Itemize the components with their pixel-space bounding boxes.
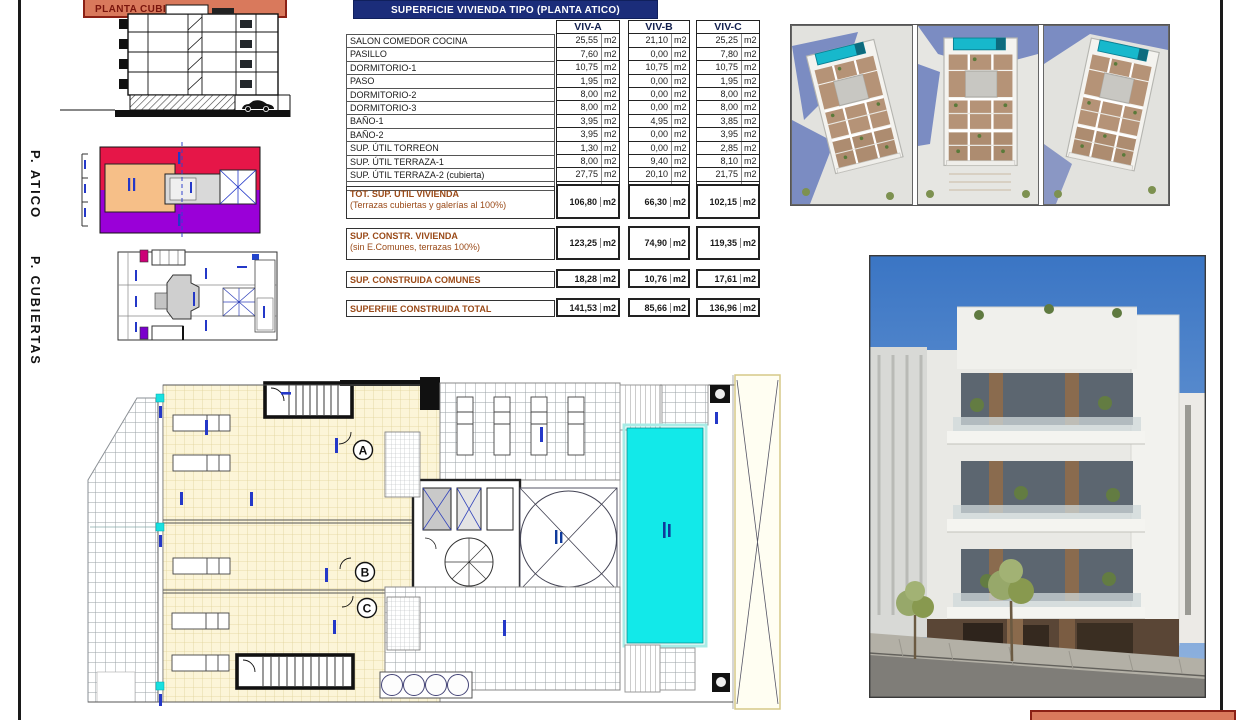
value-unit: m2 [742, 48, 759, 61]
value-unit: m2 [602, 155, 619, 168]
row-label: BAÑO-2 [346, 128, 555, 142]
value-number: 0,00 [629, 75, 672, 88]
value-unit: m2 [742, 168, 759, 181]
skylight-circle [520, 488, 617, 590]
value-number: 25,55 [557, 34, 602, 47]
value-unit: m2 [672, 115, 689, 128]
setback-strip [733, 375, 780, 709]
value-unit: m2 [742, 61, 759, 74]
planter-circles [380, 672, 472, 698]
summary-label: SUP. CONSTRUIDA COMUNES [346, 271, 555, 288]
value-unit: m2 [601, 238, 618, 248]
value-unit: m2 [602, 88, 619, 101]
value-unit: m2 [672, 101, 689, 114]
row-label: SUP. ÚTIL TERRAZA-2 (cubierta) [346, 168, 555, 182]
table-column-header-row: VIV-A VIV-B VIV-C [346, 20, 760, 33]
summary-row: SUPERFIIE CONSTRUIDA TOTAL141,53m285,66m… [346, 300, 760, 317]
value-unit: m2 [741, 274, 758, 284]
value-number: 119,35 [698, 238, 741, 248]
value-unit: m2 [742, 75, 759, 88]
value-cell: 119,35m2 [696, 226, 760, 260]
value-number: 8,10 [697, 155, 742, 168]
letter-b: B [361, 565, 370, 579]
floor-band-2 [947, 461, 1145, 532]
value-number: 7,80 [697, 48, 742, 61]
p-cubiertas-key-plan [95, 248, 285, 352]
value-unit: m2 [602, 48, 619, 61]
value-number: 3,95 [697, 128, 742, 141]
value-unit: m2 [741, 238, 758, 248]
value-cell: 141,53m2 [556, 298, 620, 317]
value-unit: m2 [742, 34, 759, 47]
value-unit: m2 [602, 61, 619, 74]
summary-row: TOT. SUP. UTIL VIVIENDA(Terrazas cubiert… [346, 186, 760, 219]
roof-floor-plan: A B C [85, 372, 785, 712]
value-number: 1,95 [697, 75, 742, 88]
value-unit: m2 [602, 142, 619, 155]
p-atico-label: P. ATICO [28, 150, 43, 219]
value-number: 8,00 [697, 101, 742, 114]
value-number: 20,10 [629, 168, 672, 181]
value-unit: m2 [602, 115, 619, 128]
aerial-render-strip [790, 24, 1170, 206]
value-number: 21,10 [629, 34, 672, 47]
value-number: 141,53 [558, 303, 601, 313]
summary-row: SUP. CONSTR. VIVIENDA(sin E.Comunes, ter… [346, 228, 760, 260]
value-number: 3,95 [557, 115, 602, 128]
value-unit: m2 [602, 101, 619, 114]
row-label: BAÑO-1 [346, 114, 555, 128]
value-number: 8,00 [697, 88, 742, 101]
atico-core-xbox [220, 170, 256, 204]
table-title: SUPERFICIE VIVIENDA TIPO (PLANTA ATICO) [353, 0, 658, 19]
floor-band-3 [947, 549, 1145, 619]
value-unit: m2 [742, 155, 759, 168]
value-number: 0,00 [629, 48, 672, 61]
value-number: 25,25 [697, 34, 742, 47]
value-unit: m2 [672, 75, 689, 88]
value-number: 10,75 [697, 61, 742, 74]
value-number: 18,28 [558, 274, 601, 284]
car-silhouette [242, 100, 274, 111]
value-number: 3,95 [557, 128, 602, 141]
letter-c: C [363, 601, 372, 615]
value-number: 21,75 [697, 168, 742, 181]
value-number: 8,00 [557, 155, 602, 168]
p-cubiertas-label: P. CUBIERTAS [28, 256, 42, 366]
value-number: 0,00 [629, 128, 672, 141]
value-unit: m2 [671, 238, 688, 248]
value-cell: 10,76m2 [628, 269, 690, 288]
aerial-render-3 [1044, 26, 1169, 205]
row-label: SALON COMEDOR COCINA [346, 34, 555, 48]
floor-band-1 [947, 373, 1145, 444]
value-unit: m2 [671, 274, 688, 284]
value-cell: 18,28m2 [556, 269, 620, 288]
row-label: SUP. ÚTIL TORREON [346, 141, 555, 155]
pergola-grid-left [88, 398, 158, 702]
value-number: 3,85 [697, 115, 742, 128]
roof-vent-top [710, 385, 730, 403]
aerial-render-2 [918, 26, 1039, 205]
value-unit: m2 [602, 75, 619, 88]
value-number: 0,00 [629, 88, 672, 101]
roof-vent-bottom [712, 673, 730, 692]
cubiertas-xgrid [223, 288, 255, 316]
value-number: 0,00 [629, 142, 672, 155]
bottom-banner [1030, 710, 1236, 720]
value-unit: m2 [602, 128, 619, 141]
value-unit: m2 [742, 88, 759, 101]
value-unit: m2 [602, 34, 619, 47]
value-unit: m2 [672, 61, 689, 74]
value-unit: m2 [672, 155, 689, 168]
letter-a: A [359, 443, 368, 457]
value-number: 9,40 [629, 155, 672, 168]
stairs-bottom [237, 655, 353, 688]
p-atico-key-plan [70, 142, 270, 238]
value-unit: m2 [742, 128, 759, 141]
value-number: 102,15 [698, 197, 741, 207]
drawing-sheet: PLANTA CUBIERTA [0, 0, 1240, 720]
value-number: 85,66 [630, 303, 671, 313]
section-linework [60, 5, 290, 117]
value-number: 136,96 [698, 303, 741, 313]
value-unit: m2 [601, 197, 618, 207]
value-unit: m2 [742, 142, 759, 155]
row-label: PASILLO [346, 47, 555, 61]
value-unit: m2 [671, 303, 688, 313]
page-border-right [1220, 0, 1223, 720]
row-label: DORMITORIO-3 [346, 101, 555, 115]
value-unit: m2 [742, 101, 759, 114]
stairs-top [265, 383, 352, 417]
value-unit: m2 [672, 142, 689, 155]
page-border-left [18, 0, 21, 720]
row-label: DORMITORIO-1 [346, 61, 555, 75]
value-unit: m2 [672, 48, 689, 61]
value-number: 17,61 [698, 274, 741, 284]
value-cell: 74,90m2 [628, 226, 690, 260]
value-cell: 106,80m2 [556, 184, 620, 219]
value-number: 74,90 [630, 238, 671, 248]
main-building [927, 304, 1179, 667]
value-cell: 66,30m2 [628, 184, 690, 219]
value-cell: 123,25m2 [556, 226, 620, 260]
table-body: SALON COMEDOR COCINA25,55m221,10m225,25m… [346, 35, 760, 191]
value-number: 4,95 [629, 115, 672, 128]
value-cell: 85,66m2 [628, 298, 690, 317]
value-number: 123,25 [558, 238, 601, 248]
value-cell: 136,96m2 [696, 298, 760, 317]
value-unit: m2 [741, 197, 758, 207]
value-unit: m2 [601, 274, 618, 284]
row-label: PASO [346, 74, 555, 88]
value-number: 1,30 [557, 142, 602, 155]
value-number: 10,75 [557, 61, 602, 74]
value-number: 8,00 [557, 88, 602, 101]
value-number: 10,76 [630, 274, 671, 284]
summary-label: SUP. CONSTR. VIVIENDA(sin E.Comunes, ter… [346, 228, 555, 260]
row-label: DORMITORIO-2 [346, 88, 555, 102]
building-section-drawing [60, 0, 320, 138]
aerial-render-1 [792, 26, 913, 205]
value-cell: 17,61m2 [696, 269, 760, 288]
value-unit: m2 [602, 168, 619, 181]
core-block [413, 480, 520, 590]
summary-label: TOT. SUP. UTIL VIVIENDA(Terrazas cubiert… [346, 186, 555, 219]
surface-table: SUPERFICIE VIVIENDA TIPO (PLANTA ATICO) … [346, 0, 760, 322]
pool [624, 425, 706, 646]
value-unit: m2 [672, 168, 689, 181]
value-unit: m2 [672, 34, 689, 47]
value-unit: m2 [671, 197, 688, 207]
value-cell: 102,15m2 [696, 184, 760, 219]
row-label: SUP. ÚTIL TERRAZA-1 [346, 155, 555, 169]
value-number: 106,80 [558, 197, 601, 207]
summary-label: SUPERFIIE CONSTRUIDA TOTAL [346, 300, 555, 317]
value-unit: m2 [741, 303, 758, 313]
value-number: 66,30 [630, 197, 671, 207]
value-number: 2,85 [697, 142, 742, 155]
value-number: 10,75 [629, 61, 672, 74]
value-unit: m2 [672, 128, 689, 141]
value-unit: m2 [672, 88, 689, 101]
value-number: 8,00 [557, 101, 602, 114]
value-number: 27,75 [557, 168, 602, 181]
summary-row: SUP. CONSTRUIDA COMUNES18,28m210,76m217,… [346, 271, 760, 288]
value-number: 7,60 [557, 48, 602, 61]
value-unit: m2 [742, 115, 759, 128]
street-render [869, 255, 1206, 698]
value-unit: m2 [601, 303, 618, 313]
value-number: 0,00 [629, 101, 672, 114]
value-number: 1,95 [557, 75, 602, 88]
